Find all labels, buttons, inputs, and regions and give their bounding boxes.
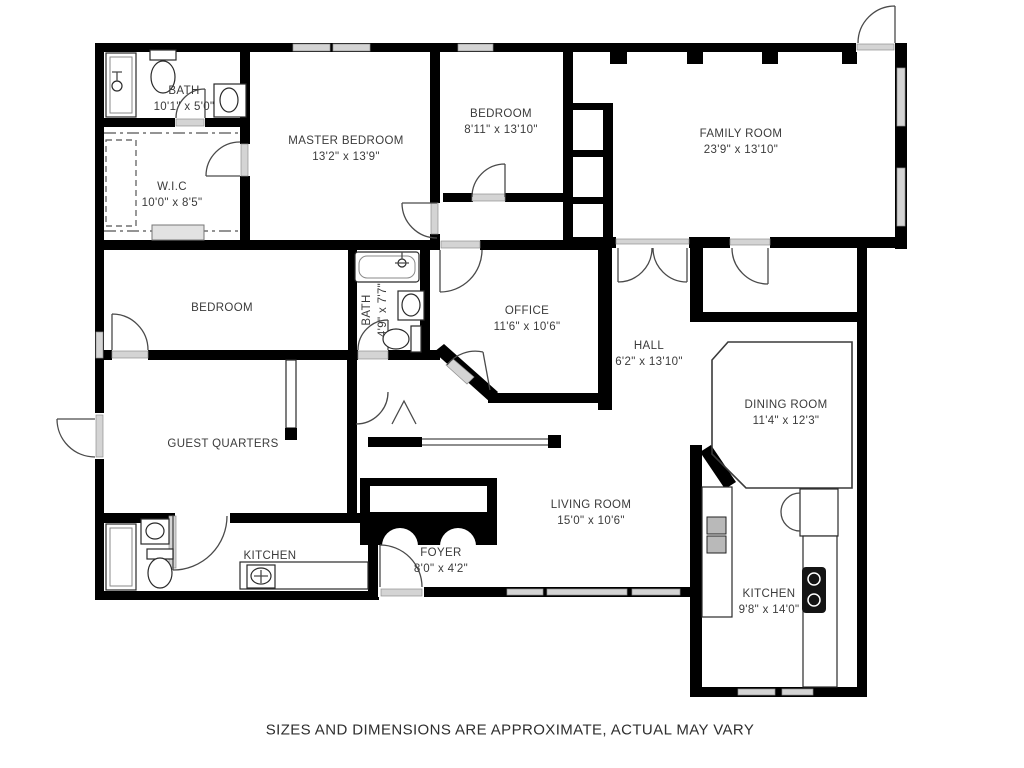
- room-name: KITCHEN: [739, 586, 800, 602]
- half-wall-shelf: [422, 435, 561, 448]
- room-name: DINING ROOM: [744, 397, 827, 413]
- room-name: OFFICE: [494, 303, 561, 319]
- foyer-closet: [360, 478, 497, 546]
- room-dims: 8'0" x 4'2": [414, 561, 468, 577]
- room-name: FOYER: [414, 545, 468, 561]
- room-label-office: OFFICE 11'6" x 10'6": [494, 303, 561, 335]
- room-dims: 11'4" x 12'3": [744, 413, 827, 429]
- room-label-kitchen-right: KITCHEN 9'8" x 14'0": [739, 586, 800, 618]
- room-name: FAMILY ROOM: [700, 126, 783, 142]
- room-dims: 4'9" x 7'7": [375, 283, 391, 337]
- guest-closet-divider: [285, 360, 297, 440]
- bath-bottom-fixtures: [106, 519, 173, 590]
- room-label-living-room: LIVING ROOM 15'0" x 10'6": [551, 497, 632, 529]
- room-dims: 9'8" x 14'0": [739, 602, 800, 618]
- toilet-icon: [150, 50, 176, 60]
- room-label-wic: W.I.C 10'0" x 8'5": [142, 179, 203, 211]
- cooktop-icon: [707, 536, 726, 553]
- disclaimer-text: SIZES AND DIMENSIONS ARE APPROXIMATE, AC…: [266, 722, 755, 739]
- refrigerator-icon: [800, 489, 838, 536]
- room-name: BATH: [359, 283, 375, 337]
- room-name: GUEST QUARTERS: [167, 436, 278, 452]
- room-label-family-room: FAMILY ROOM 23'9" x 13'10": [700, 126, 783, 158]
- room-name: HALL: [615, 338, 683, 354]
- room-label-bedroom-left: BEDROOM: [191, 300, 253, 316]
- room-label-guest-quarters: GUEST QUARTERS: [167, 436, 278, 452]
- room-name: BATH: [154, 83, 215, 99]
- room-label-bath-middle: BATH 4'9" x 7'7": [359, 283, 391, 337]
- room-dims: 10'0" x 8'5": [142, 195, 203, 211]
- room-name: MASTER BEDROOM: [288, 133, 403, 149]
- room-dims: 13'2" x 13'9": [288, 149, 403, 165]
- room-label-hall: HALL 6'2" x 13'10": [615, 338, 683, 370]
- cooktop-icon: [707, 517, 726, 534]
- floor-plan-page: BATH 10'1" x 5'0" W.I.C 10'0" x 8'5" MAS…: [0, 0, 1024, 768]
- room-dims: 15'0" x 10'6": [551, 513, 632, 529]
- room-name: KITCHEN: [244, 548, 297, 564]
- room-dims: 6'2" x 13'10": [615, 354, 683, 370]
- room-dims: 23'9" x 13'10": [700, 142, 783, 158]
- room-dims: 10'1" x 5'0": [154, 99, 215, 115]
- room-label-bedroom-top: BEDROOM 8'11" x 13'10": [464, 106, 538, 138]
- room-label-kitchen-left: KITCHEN: [244, 548, 297, 564]
- room-label-bath-top: BATH 10'1" x 5'0": [154, 83, 215, 115]
- room-dims: 11'6" x 10'6": [494, 319, 561, 335]
- room-name: LIVING ROOM: [551, 497, 632, 513]
- room-name: BEDROOM: [464, 106, 538, 122]
- toilet-icon: [411, 326, 421, 352]
- room-label-master-bedroom: MASTER BEDROOM 13'2" x 13'9": [288, 133, 403, 165]
- kitchen-left-fixtures: [240, 562, 368, 589]
- closet-shelf: [152, 225, 204, 240]
- room-name: BEDROOM: [191, 300, 253, 316]
- room-name: W.I.C: [142, 179, 203, 195]
- room-label-dining-room: DINING ROOM 11'4" x 12'3": [744, 397, 827, 429]
- room-dims: 8'11" x 13'10": [464, 122, 538, 138]
- room-label-foyer: FOYER 8'0" x 4'2": [414, 545, 468, 577]
- shower-head-icon: [112, 81, 122, 91]
